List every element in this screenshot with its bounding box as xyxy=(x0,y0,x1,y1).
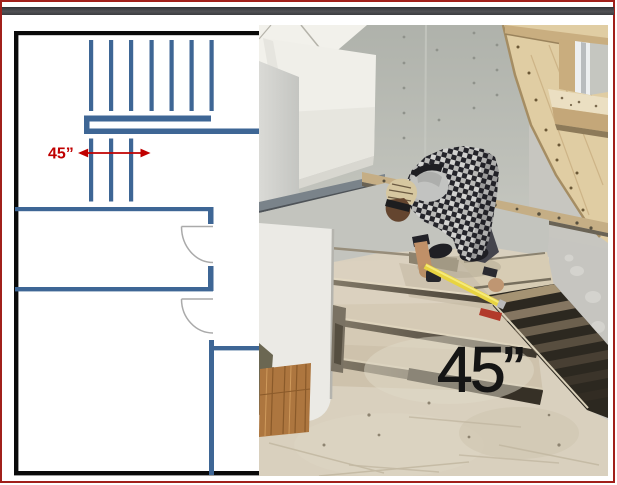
svg-text:45”: 45” xyxy=(48,146,74,163)
svg-text:45”: 45” xyxy=(437,334,522,406)
